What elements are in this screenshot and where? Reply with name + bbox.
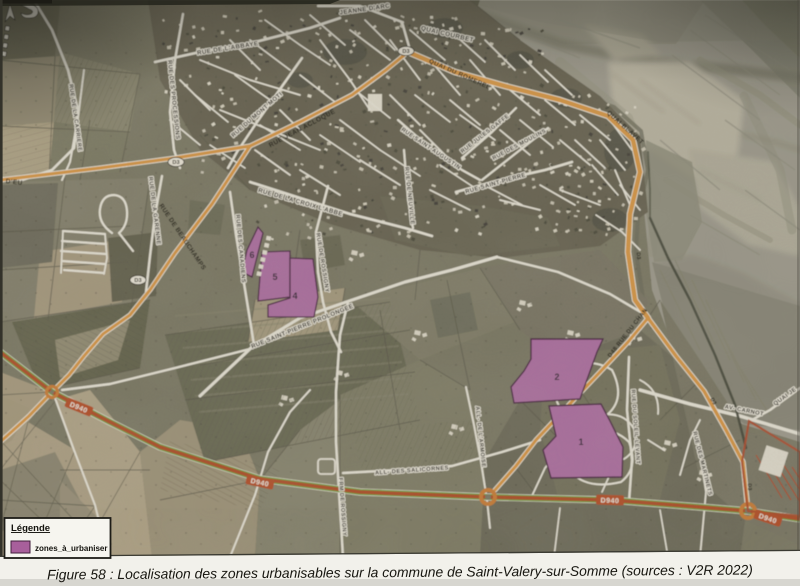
svg-text:Légende: Légende: [11, 523, 50, 534]
svg-text:zones_à_urbaniser: zones_à_urbaniser: [35, 544, 107, 553]
